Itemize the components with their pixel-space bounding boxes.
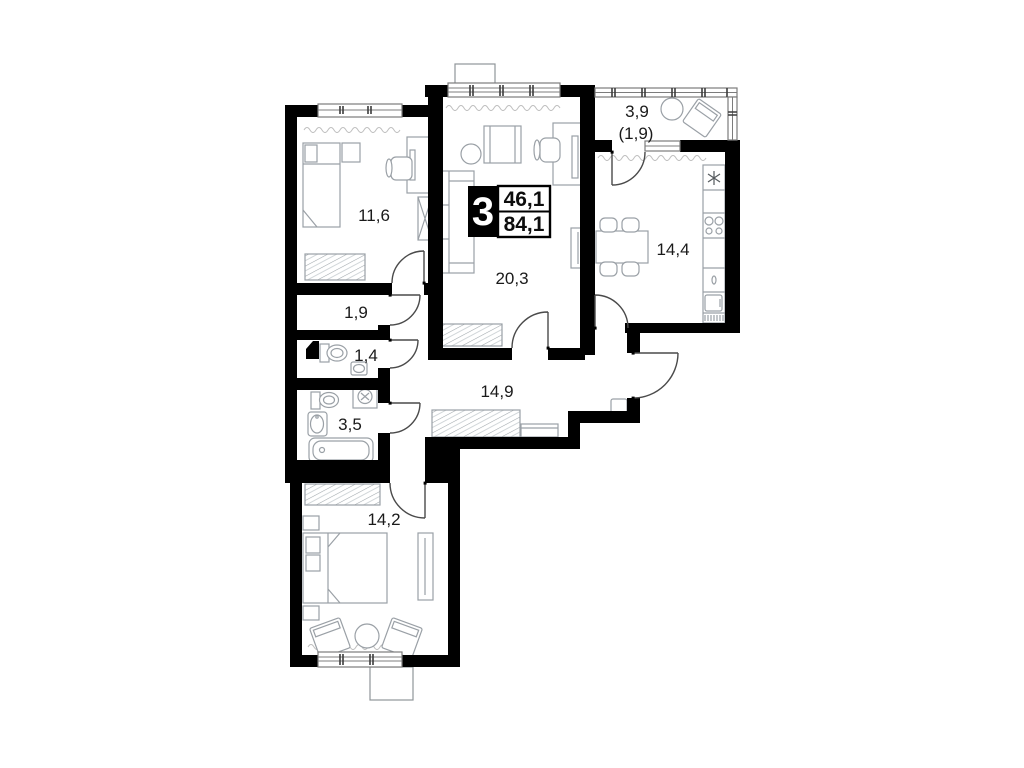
bathroom-sink-icon: [308, 412, 327, 436]
room-area-label-hallway: 14,9: [480, 382, 513, 401]
living-area-value: 46,1: [504, 188, 545, 211]
wall-segment: [297, 378, 378, 390]
nightstand-icon: [303, 516, 319, 530]
wall-segment: [428, 85, 443, 348]
kitchen-sink-icon: [705, 295, 722, 311]
room-area-label-wc: 1,4: [354, 346, 378, 365]
round-table-icon: [355, 624, 379, 648]
desk-chair-icon: [534, 138, 560, 162]
wall-segment: [290, 470, 302, 667]
wall-segment: [725, 140, 740, 333]
wall-segment: [402, 105, 430, 117]
round-table-icon: [661, 98, 683, 120]
wall-segment: [402, 655, 460, 667]
wardrobe-icon: [418, 533, 433, 600]
desk-chair-icon: [386, 157, 412, 180]
room-area-label-kitchen: 14,4: [656, 240, 689, 259]
closet-shelves-icon: [305, 484, 380, 505]
wall-segment: [625, 323, 740, 333]
wall-segment: [448, 470, 460, 667]
toilet-icon: [311, 392, 339, 409]
wall-segment: [378, 368, 390, 403]
closet-shelves-icon: [432, 410, 520, 437]
room-count: 3: [472, 190, 494, 234]
closet-shelves-icon: [305, 254, 365, 280]
wall-segment: [425, 85, 448, 97]
wall-segment: [297, 330, 378, 340]
wall-segment: [627, 398, 640, 423]
bench-icon: [521, 424, 558, 437]
wall-segment: [583, 88, 595, 152]
wall-segment: [378, 325, 390, 340]
room-area-label-balcony-reduced: (1,9): [619, 124, 654, 143]
wall-segment: [285, 105, 318, 117]
vent-shaft: [306, 341, 319, 359]
dining-table-icon: [596, 231, 648, 263]
room-area-label-balcony: 3,9: [625, 102, 649, 121]
room-area-label-bedroom-bottom: 14,2: [367, 510, 400, 529]
floor-plan-page: 3 46,1 84,1 11,6 1,9 1,4 3,5 14,2 20,3 1…: [0, 0, 1024, 768]
room-area-label-bathroom: 3,5: [338, 415, 362, 434]
wall-segment: [424, 283, 443, 295]
toilet-icon: [320, 344, 347, 362]
room-area-label-bedroom-top: 11,6: [358, 206, 390, 225]
wall-segment: [548, 348, 585, 360]
nightstand-icon: [342, 143, 360, 162]
total-area-value: 84,1: [504, 213, 545, 236]
closet-shelves-icon: [438, 324, 502, 346]
wall-segment: [627, 333, 640, 353]
wall-segment: [428, 437, 580, 449]
room-area-label-storage: 1,9: [344, 303, 368, 322]
wall-segment: [378, 433, 390, 470]
wall-segment: [428, 348, 512, 360]
floor-plan: 3 46,1 84,1 11,6 1,9 1,4 3,5 14,2 20,3 1…: [0, 0, 1024, 768]
bed-icon: [303, 143, 340, 227]
wall-segment: [290, 655, 318, 667]
nightstand-icon: [303, 606, 319, 620]
pouf-icon: [461, 144, 481, 164]
window: [318, 652, 402, 667]
double-bed-icon: [303, 533, 387, 603]
armchair-icon: [484, 126, 521, 163]
wall-segment: [285, 283, 392, 295]
dishwasher-grill-icon: [705, 315, 723, 321]
unit-info-badge: 3 46,1 84,1: [468, 186, 550, 237]
bathtub-icon: [309, 438, 373, 463]
room-area-label-living-room: 20,3: [495, 269, 528, 288]
lower-basket-outline: [370, 667, 413, 700]
window: [448, 83, 560, 97]
